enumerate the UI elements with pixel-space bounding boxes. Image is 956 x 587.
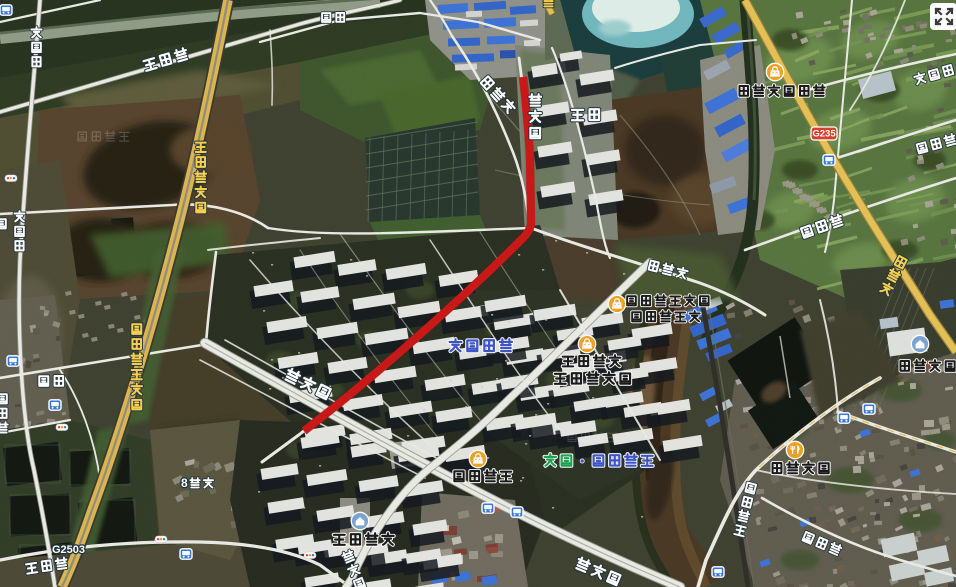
svg-text:G235: G235: [812, 129, 836, 140]
svg-text:8: 8: [181, 476, 188, 490]
svg-text:G2503: G2503: [52, 544, 85, 556]
